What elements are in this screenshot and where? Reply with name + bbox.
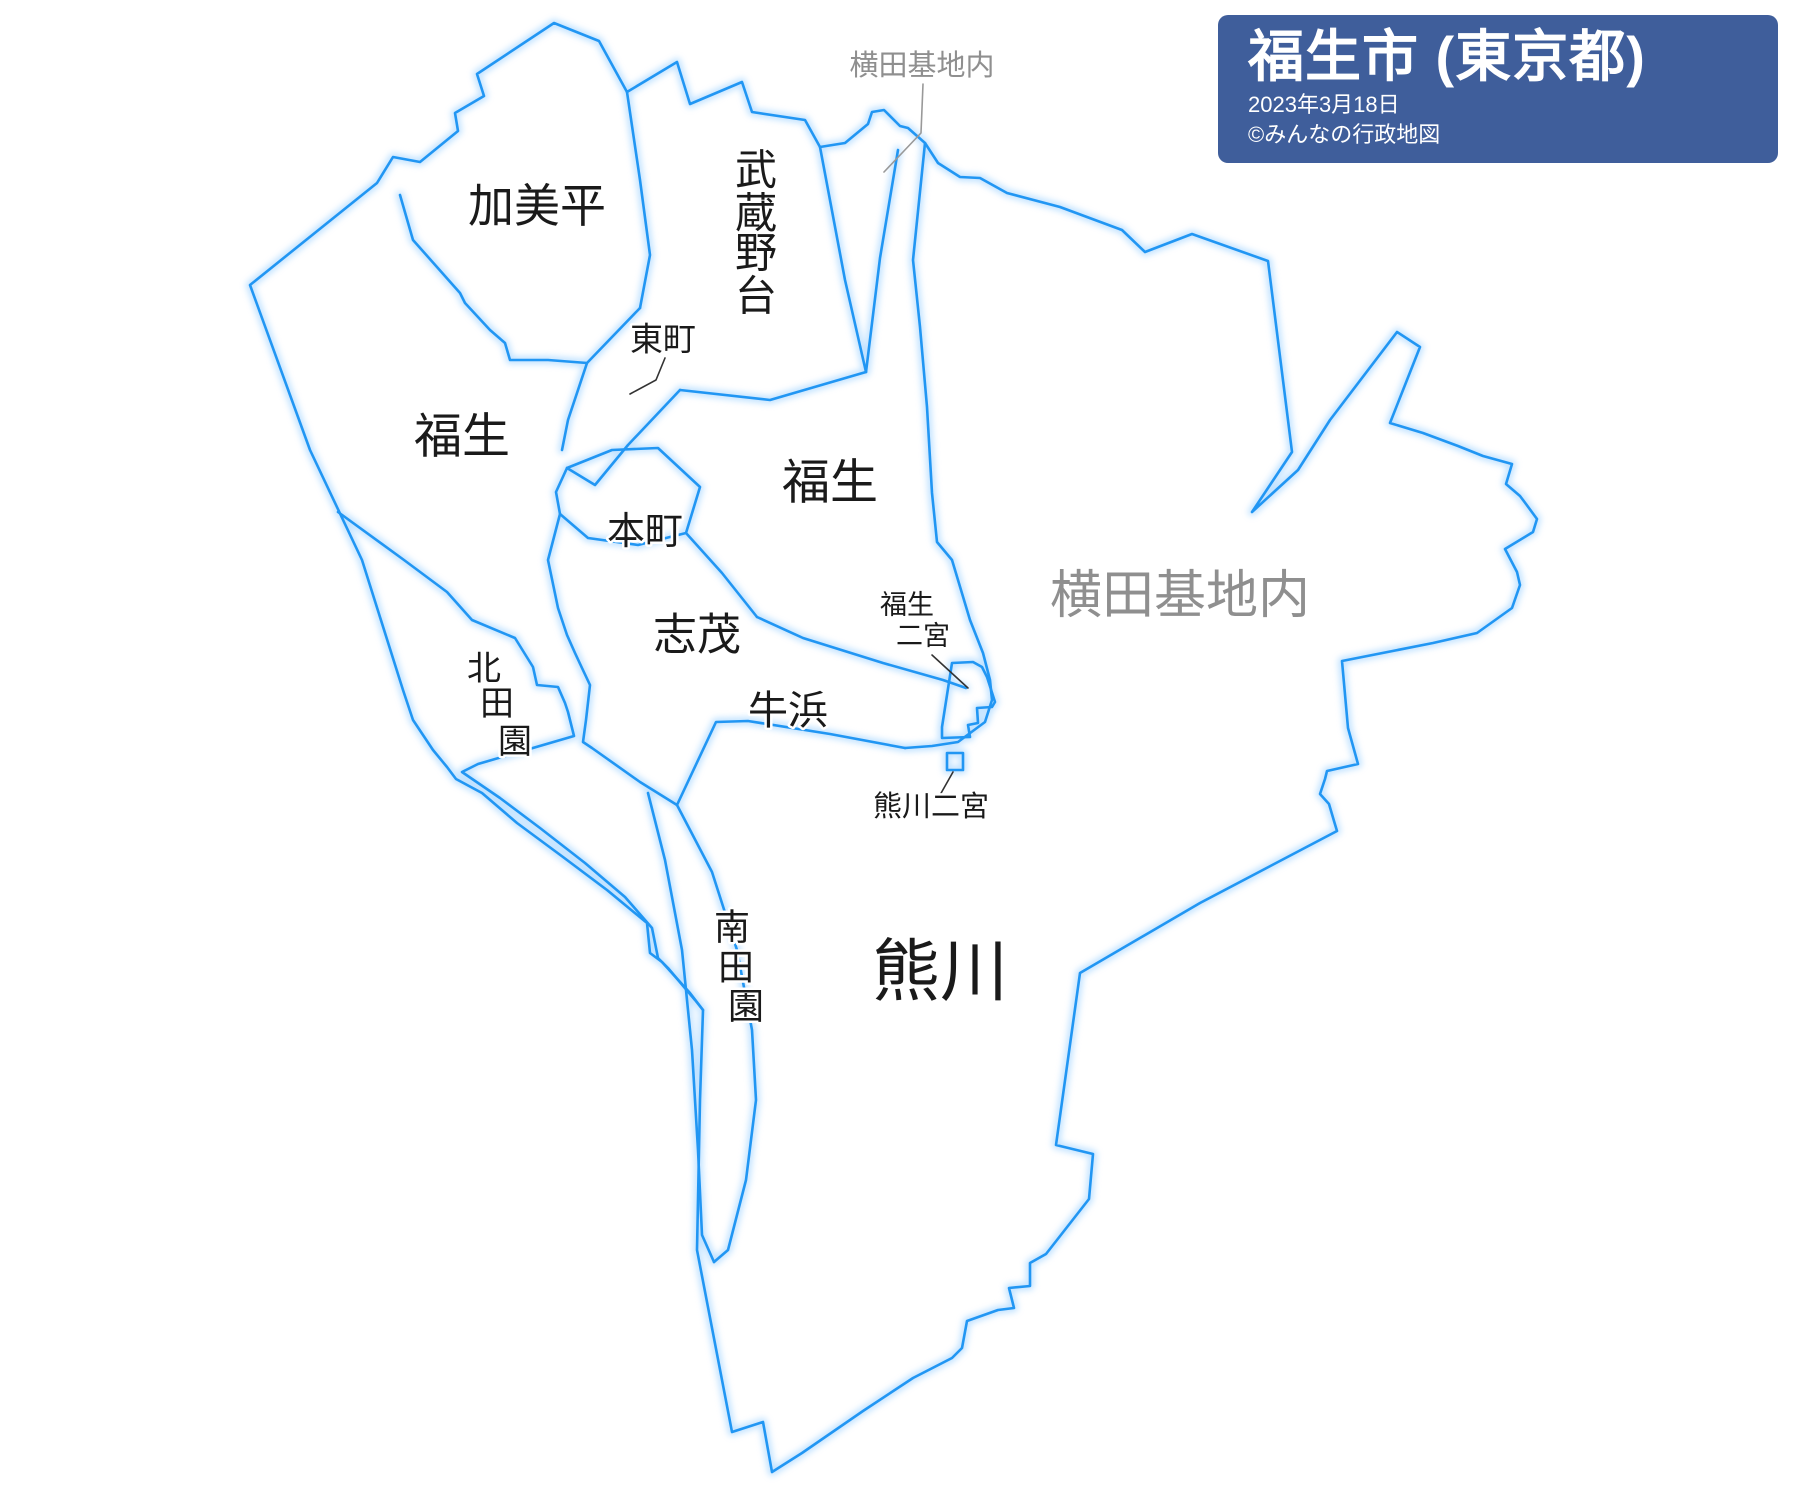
- district-label-higashicho: 東町: [630, 321, 696, 358]
- yokota-fussa-border-glow: [905, 143, 992, 748]
- kumagawa-ninomiya-square-glow: [947, 753, 963, 770]
- district-label-musashinodai-2: 野: [735, 230, 777, 277]
- district-label-layer: 加美平福生福生東町本町志茂牛浜熊川福生二宮熊川二宮横田基地内横田基地内武蔵野台北…: [414, 49, 1310, 1027]
- higashicho-corridor-east-glow: [567, 390, 680, 485]
- district-label-minami-denen-1: 田: [718, 947, 754, 988]
- title-card: 福生市 (東京都) 2023年3月18日 ©みんなの行政地図: [1218, 15, 1778, 163]
- musashinodai-south-edge-glow: [680, 372, 866, 400]
- district-label-ushihama: 牛浜: [748, 689, 828, 733]
- district-label-yokota-base-large: 横田基地内: [1050, 567, 1310, 625]
- ushihama-kumagawa-border: [677, 721, 905, 805]
- district-label-musashinodai-0: 武: [735, 147, 777, 194]
- map-date: 2023年3月18日: [1248, 91, 1758, 119]
- district-label-fussa-center: 福生: [782, 457, 878, 510]
- district-label-honcho: 本町: [607, 511, 683, 553]
- district-label-fussa-west: 福生: [414, 411, 510, 464]
- boundary-glow-layer: [250, 23, 1537, 1472]
- map-canvas: 加美平福生福生東町本町志茂牛浜熊川福生二宮熊川二宮横田基地内横田基地内武蔵野台北…: [0, 0, 1800, 1490]
- higashicho-corridor-west: [562, 308, 640, 450]
- district-label-kita-denen-0: 北: [467, 650, 501, 688]
- district-label-kumagawa-ninomiya: 熊川二宮: [873, 790, 989, 823]
- shimo-west-edge: [548, 514, 677, 805]
- district-label-minami-denen-2: 園: [728, 986, 764, 1027]
- higashicho-corridor-west-glow: [562, 308, 640, 450]
- district-label-minami-denen-0: 南: [714, 907, 750, 948]
- district-label-fussa-ninomiya-1: 福生: [880, 590, 934, 620]
- fussa-city-map-page: 加美平福生福生東町本町志茂牛浜熊川福生二宮熊川二宮横田基地内横田基地内武蔵野台北…: [0, 0, 1800, 1490]
- leader-higashicho: [630, 358, 665, 394]
- district-label-kamidaira: 加美平: [468, 180, 606, 232]
- district-label-kita-denen-2: 園: [498, 723, 532, 761]
- district-label-musashinodai-3: 台: [735, 273, 777, 320]
- district-label-kumagawa: 熊川: [872, 934, 1008, 1010]
- page-title: 福生市 (東京都): [1248, 25, 1758, 89]
- map-copyright: ©みんなの行政地図: [1248, 121, 1758, 149]
- district-label-yokota-base-small: 横田基地内: [849, 49, 994, 82]
- district-label-shimo: 志茂: [653, 611, 741, 660]
- district-label-kita-denen-1: 田: [480, 685, 514, 723]
- district-label-fussa-ninomiya-2: 二宮: [896, 621, 950, 651]
